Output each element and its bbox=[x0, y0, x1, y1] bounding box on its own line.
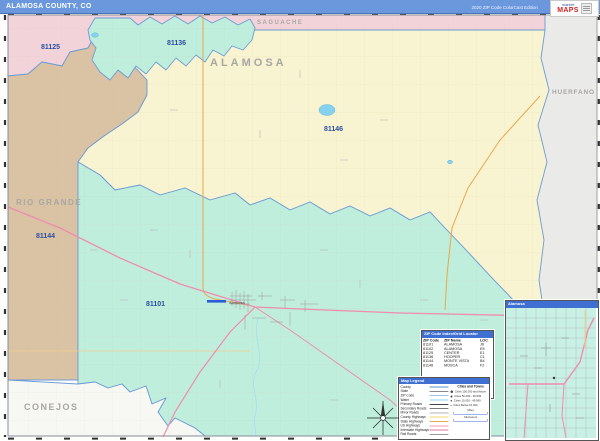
city-dot-icon bbox=[451, 405, 452, 406]
legend-line-swatch bbox=[430, 391, 449, 392]
inset-city-dot bbox=[553, 377, 555, 379]
legend-line-swatch bbox=[430, 408, 449, 409]
zip-label-81125: 81125 bbox=[41, 44, 60, 51]
city-dot-icon bbox=[451, 391, 454, 394]
legend-line-swatch bbox=[430, 421, 449, 422]
legend-line-swatch bbox=[430, 430, 449, 431]
compass-rose-icon bbox=[365, 399, 401, 437]
scale-kilometers: Kilometers bbox=[451, 416, 491, 422]
legend-line-swatch bbox=[430, 417, 449, 418]
county-label-conejos: CONEJOS bbox=[24, 402, 79, 412]
city-label-alamosa: Alamosa bbox=[229, 300, 245, 305]
zip-label-81144: 81144 bbox=[36, 233, 55, 240]
zip-label-81101: 81101 bbox=[146, 301, 165, 308]
county-label-huerfano: HUERFANO bbox=[552, 89, 595, 96]
edition-label: 2020 ZIP Code ColorCast Edition bbox=[472, 5, 538, 10]
title-bar: ALAMOSA COUNTY, CO 2020 ZIP Code ColorCa… bbox=[0, 0, 600, 14]
legend-line-swatch bbox=[430, 434, 449, 435]
legend-city-items: Cities 100,000 and Above Cities 50,000 -… bbox=[451, 390, 491, 408]
map-title: ALAMOSA COUNTY, CO bbox=[6, 3, 92, 10]
legend-city-item: Cities Below 10,000 bbox=[451, 403, 491, 408]
legend-line-swatch bbox=[430, 400, 449, 401]
legend-line-swatch bbox=[430, 395, 449, 396]
zip-index-rows: 81101 ALAMOSA J6 81102 ALAMOSA E5 81125 … bbox=[423, 343, 494, 368]
legend-line-swatch bbox=[430, 404, 449, 405]
legend-line-swatch bbox=[430, 412, 449, 413]
zip-label-81136: 81136 bbox=[167, 40, 186, 47]
city-dot-icon bbox=[451, 400, 453, 402]
zip-index-title: ZIP Code Index/Grid Locator bbox=[422, 331, 493, 336]
inset-map-panel: Alamosa bbox=[505, 300, 599, 441]
legend-line-swatch bbox=[430, 425, 449, 426]
airport-runway bbox=[207, 300, 226, 303]
table-row: 81146 MOSCA F2 bbox=[423, 363, 494, 367]
legend-line-swatch bbox=[430, 387, 449, 388]
map-legend: Map Legend County State ZIP Code bbox=[398, 377, 490, 440]
city-dot-icon bbox=[451, 395, 453, 397]
legend-line-items: County State ZIP Code Water bbox=[401, 385, 449, 437]
zip-label-81146: 81146 bbox=[324, 126, 343, 133]
logo-address-block bbox=[581, 3, 592, 14]
map-sheet: SAGUACHE ALAMOSA RIO GRANDE CONEJOS HUER… bbox=[0, 0, 600, 440]
scale-miles: Miles bbox=[451, 409, 491, 415]
logo-word-maps: MAPS bbox=[557, 7, 578, 14]
county-label-saguache: SAGUACHE bbox=[257, 20, 303, 26]
inset-title: Alamosa bbox=[506, 301, 598, 306]
county-label-rio-grande: RIO GRANDE bbox=[16, 198, 82, 207]
legend-item: Rail Roads bbox=[401, 432, 449, 436]
county-label-alamosa: ALAMOSA bbox=[210, 57, 287, 69]
marketmaps-logo: market MAPS bbox=[550, 0, 599, 17]
legend-title: Map Legend bbox=[399, 378, 489, 383]
inset-map[interactable] bbox=[506, 308, 596, 438]
